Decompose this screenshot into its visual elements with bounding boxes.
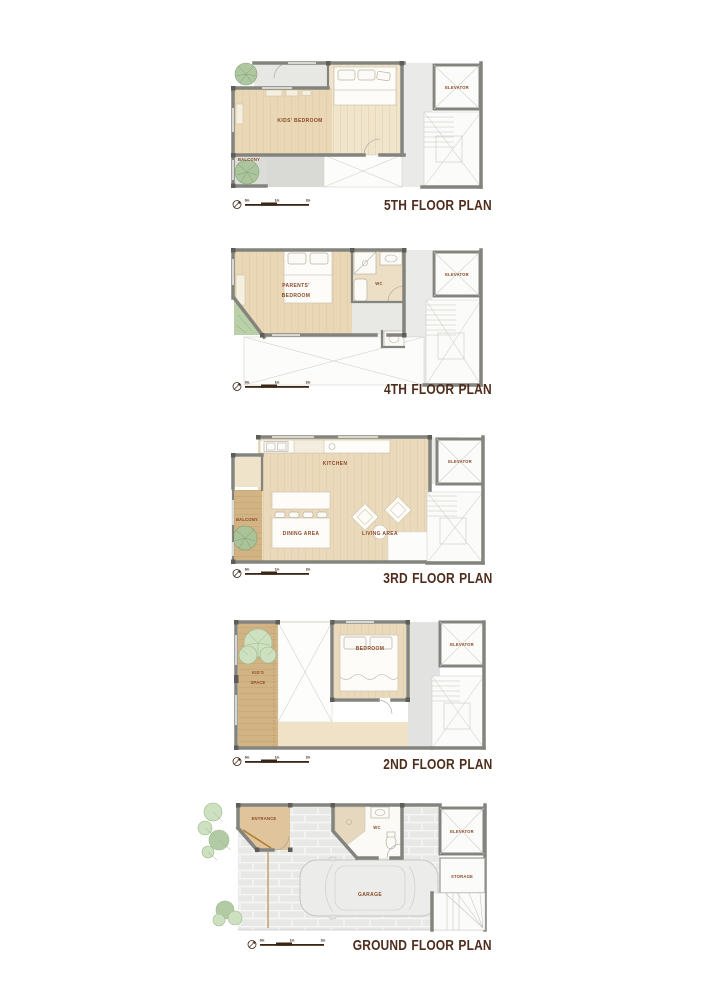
floor-plan-3rd: ELEVATOR KITCHEN BALCONY DINING AREA LIV… [228,430,488,570]
elevator-shaft: ELEVATOR [437,439,483,484]
room-label-kids-space-2: SPACE [250,680,265,685]
room-label-dining: DINING AREA [283,531,320,537]
scale-label: 2m [306,199,311,203]
room-label-kitchen: KITCHEN [323,461,348,467]
north-arrow-icon [233,383,241,391]
title-3rd-floor: 3RD FLOOR PLAN [383,571,492,587]
scale-label: 0m [245,568,250,572]
scale-label: 2m [321,939,326,943]
scale-label: 2m [306,568,311,572]
scale-label: 0m [245,756,250,760]
bedroom-box [330,620,410,714]
bed [334,67,396,105]
title-ground-floor: GROUND FLOOR PLAN [353,938,492,954]
title-5th-floor: 5TH FLOOR PLAN [384,198,492,214]
room-label-parents-2: BEDROOM [282,293,311,299]
scale-label: 2m [306,381,311,385]
floor-plans-sheet: ELEVATOR KIDS' BEDROOM BALCONY [0,0,714,1000]
dining-set [272,492,330,548]
room-label-storage: STORAGE [451,874,473,879]
room-label-elevator: ELEVATOR [445,85,469,90]
room-label-elevator: ELEVATOR [450,642,474,647]
title-4th-floor: 4TH FLOOR PLAN [384,382,492,398]
scale-label: 0m [260,939,265,943]
scale-label: 1m [275,568,280,572]
scale-bar: 0m 1m 2m [231,380,315,393]
scale-bar: 0m 1m 2m [231,567,315,580]
floor-plan-ground: ELEVATOR STORAGE ENTRANCE WC GARAGE [195,798,495,935]
room-label-balcony: BALCONY [236,517,258,522]
north-arrow-icon [233,758,241,766]
scale-label: 1m [275,756,280,760]
scale-bar: 0m 1m 2m [231,755,315,768]
title-2nd-floor: 2ND FLOOR PLAN [383,757,492,773]
scale-bar: 0m 1m 2m [246,938,330,951]
plant-icon [213,901,242,926]
scale-label: 0m [245,381,250,385]
room-label-elevator: ELEVATOR [448,459,472,464]
scale-label: 1m [290,939,295,943]
room-label-bedroom: BEDROOM [356,646,385,652]
floor-plan-5th: ELEVATOR KIDS' BEDROOM BALCONY [228,60,486,195]
room-label-elevator: ELEVATOR [450,829,474,834]
floor-plan-2nd: ELEVATOR KID'S SPACE BEDROOM [228,615,486,755]
staircase [432,893,485,930]
room-label-living: LIVING AREA [362,531,398,537]
storage-room: STORAGE [440,858,485,893]
tree-icon [235,63,257,85]
elevator-shaft: ELEVATOR [440,808,484,854]
room-label-kids-bedroom: KIDS' BEDROOM [277,118,322,124]
room-label-kids-space-1: KID'S [252,670,264,675]
north-arrow-icon [248,941,256,949]
scale-label: 1m [275,199,280,203]
elevator-shaft: ELEVATOR [434,65,480,109]
room-label-elevator: ELEVATOR [445,272,469,277]
room-label-garage: GARAGE [358,892,382,898]
scale-bar: 0m 1m 2m [231,198,315,211]
elevator-shaft: ELEVATOR [434,252,480,296]
scale-label: 2m [306,756,311,760]
north-arrow-icon [233,570,241,578]
scale-label: 1m [275,381,280,385]
room-label-entrance: ENTRANCE [252,816,277,821]
room-label-wc: WC [375,281,382,286]
room-label-parents-1: PARENTS' [282,283,310,289]
scale-label: 0m [245,199,250,203]
tree-icon [235,160,259,184]
plant-icon [233,526,257,550]
room-label-wc: WC [373,825,380,830]
kitchen-counter [260,440,390,453]
elevator-shaft: ELEVATOR [440,622,484,666]
plant-icon [198,803,231,860]
floor-plan-4th: ELEVATOR PARENTS' BEDROOM WC [228,245,486,390]
north-arrow-icon [233,201,241,209]
car [300,857,438,919]
room-label-balcony: BALCONY [238,157,260,162]
